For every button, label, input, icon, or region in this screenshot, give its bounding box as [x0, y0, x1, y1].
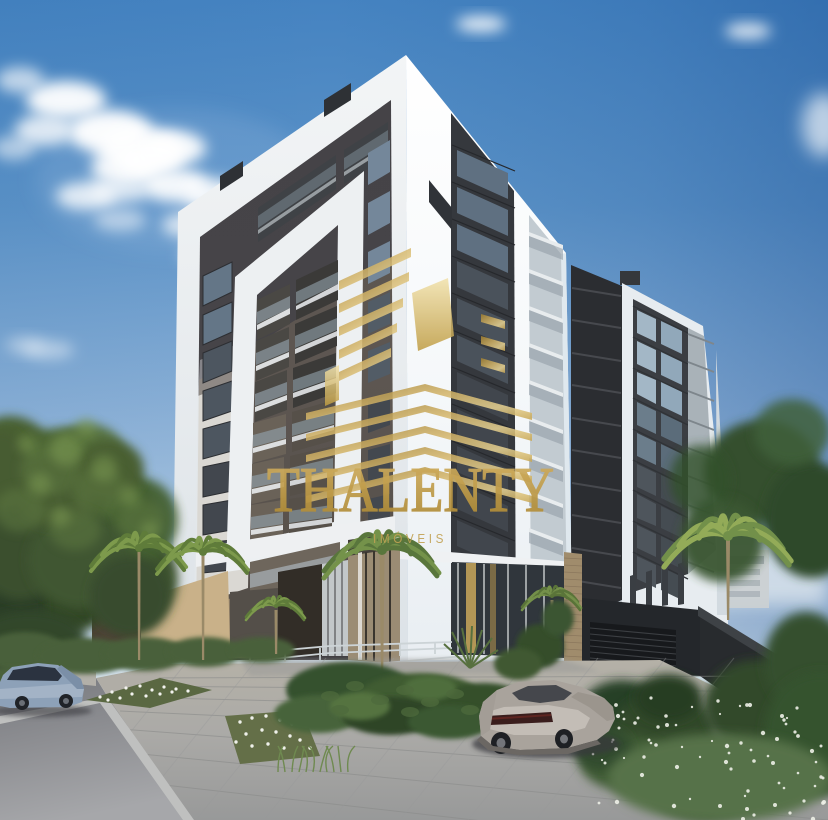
svg-text:IMÓVEIS: IMÓVEIS [373, 531, 447, 546]
svg-text:THALENTY: THALENTY [267, 454, 554, 525]
